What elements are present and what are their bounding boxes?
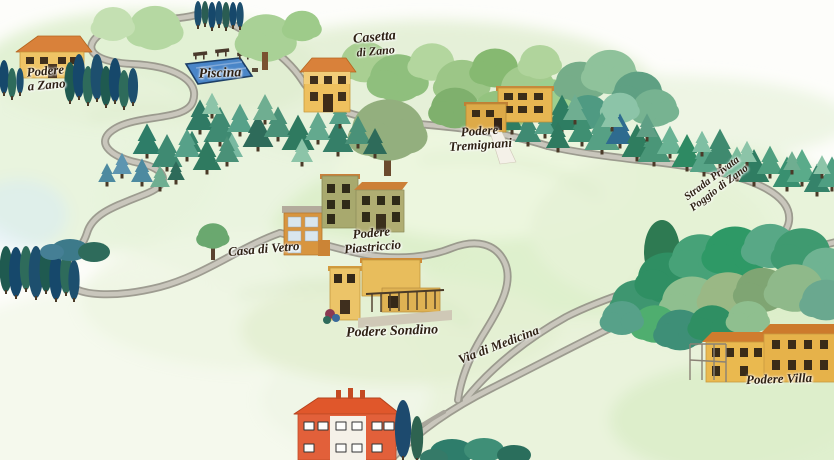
building-podere-piastriccio (320, 174, 408, 232)
estate-map: Podere a Zano Piscina Casetta di Zano Po… (0, 0, 834, 460)
map-illustration (0, 0, 834, 460)
building-podere-villa (690, 324, 834, 382)
building-casetta-di-zano (300, 58, 356, 112)
